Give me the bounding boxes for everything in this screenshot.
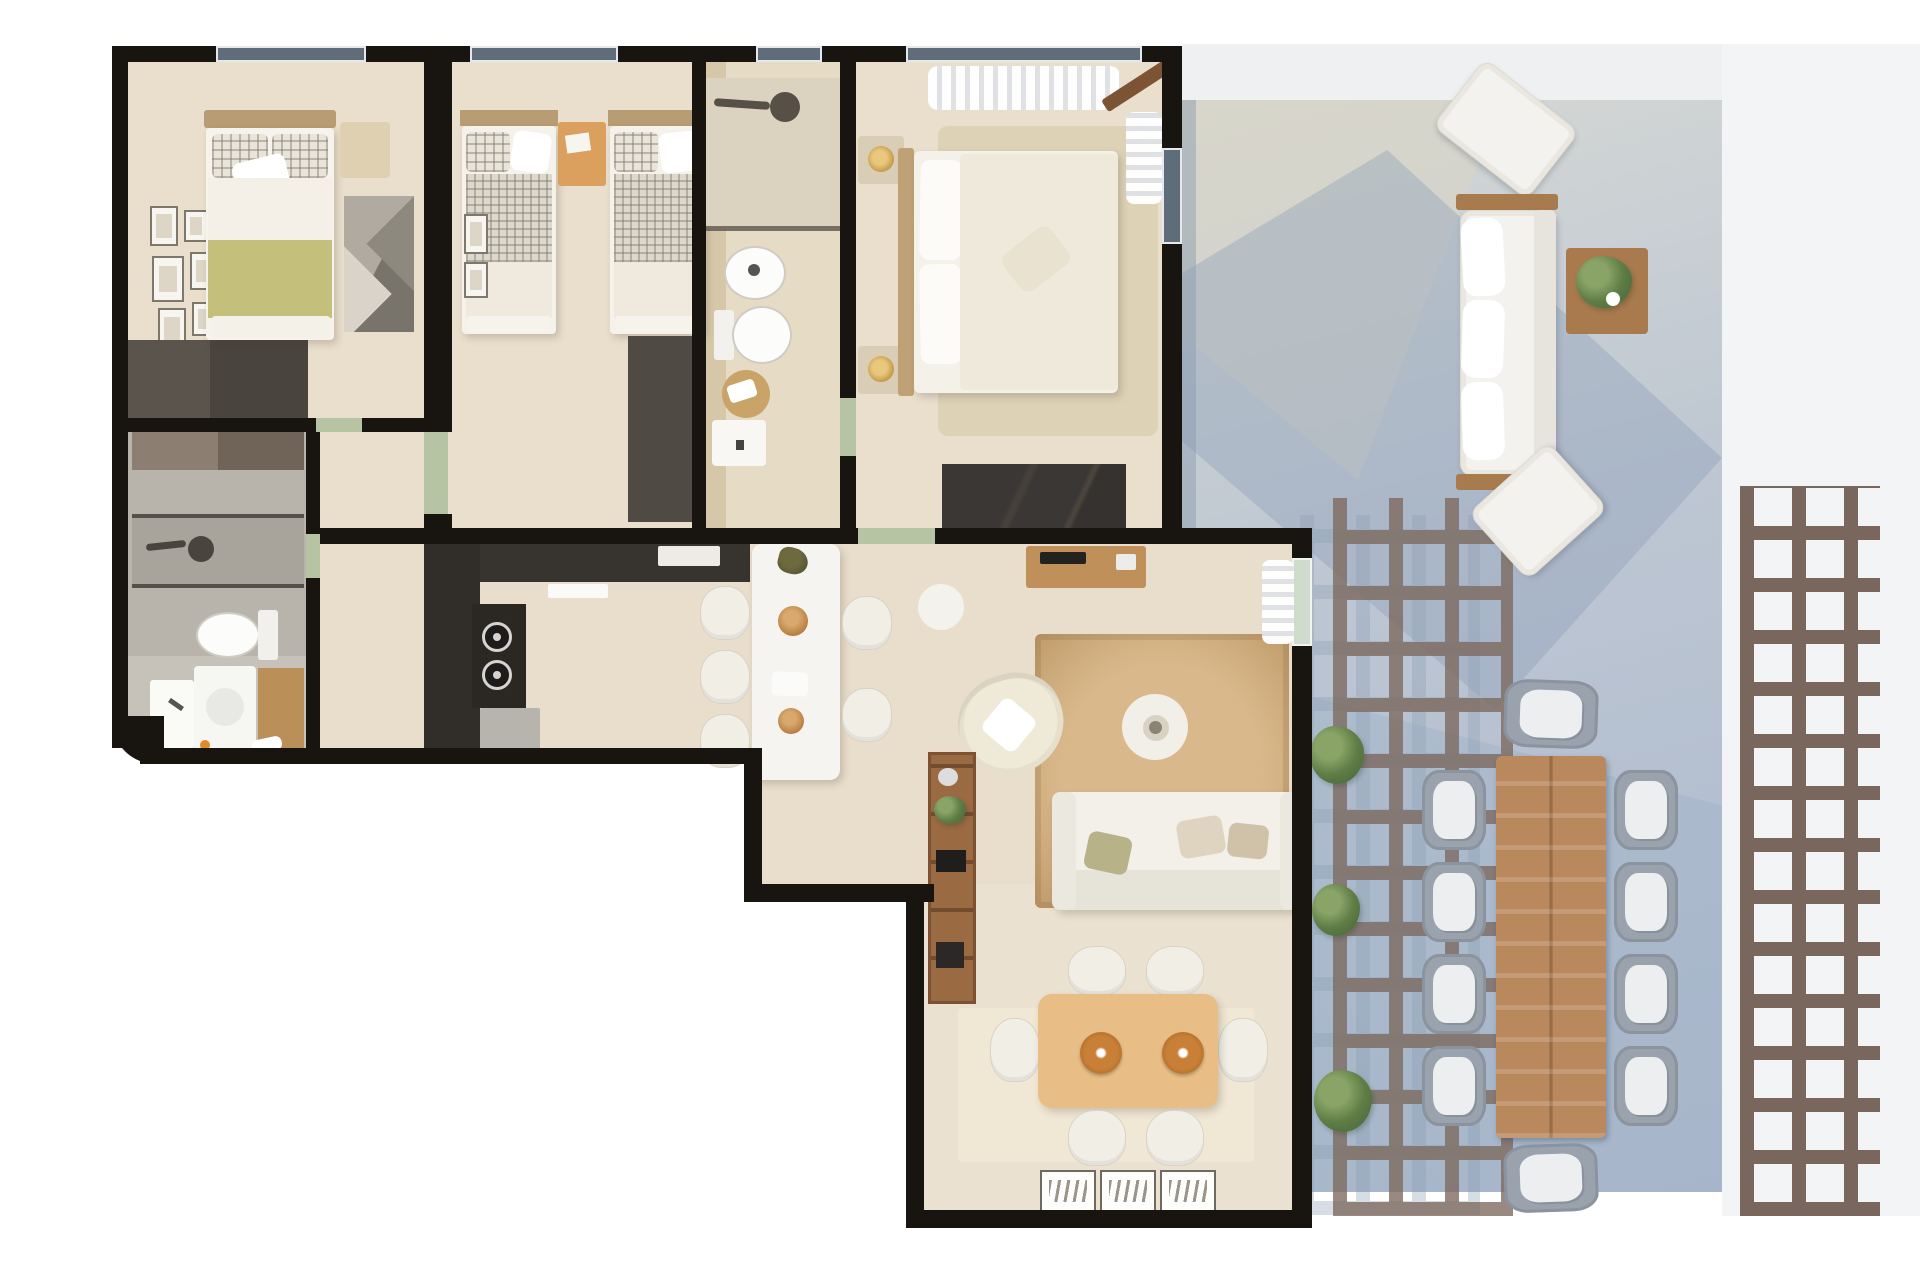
bedroom2-poster [464, 262, 488, 298]
window-bathroom1 [756, 46, 822, 62]
dining-chair [990, 1018, 1040, 1082]
bedroom2-bedB-pillow [614, 132, 658, 172]
wall-bottom-entry [140, 748, 762, 764]
bathroom1-toilet-tank [714, 310, 734, 360]
island-bowl [778, 708, 804, 734]
kitchen-cooktop-section [472, 604, 526, 708]
kitchen-ac-vent [658, 546, 720, 566]
wall-bed2-bath1 [692, 60, 706, 542]
dining-chair [1068, 1110, 1126, 1166]
terrace-sliding-door [1292, 558, 1312, 646]
tv-remote [1040, 552, 1086, 564]
outdoor-chair [1503, 1142, 1599, 1213]
dining-chair [1218, 1018, 1268, 1082]
outdoor-sofa-cushion [1461, 381, 1506, 460]
shelf-box [936, 850, 966, 872]
outdoor-sofa-armrest [1534, 210, 1556, 476]
bedroom2-bedA-pillow [466, 132, 510, 172]
island-chair [842, 596, 892, 650]
bathroom2-shower [132, 514, 304, 588]
wall-dining-bottom [906, 1210, 1312, 1228]
kitchen-island [752, 544, 840, 780]
wall-bed1-bed2-low [424, 514, 452, 528]
bedroom1-dresser [210, 340, 308, 418]
bedroom2-bedA-pillow [509, 130, 552, 175]
bathroom2-toilet-tank [258, 610, 278, 660]
outdoor-chair [1503, 678, 1599, 749]
door-threshold-bathroom2 [306, 534, 320, 578]
bathroom2-toilet-bowl [196, 612, 260, 658]
bathroom1-bidet-tap [748, 264, 760, 276]
outdoor-cup [1606, 292, 1620, 306]
coffee-table-bowl [1149, 721, 1162, 734]
dining-art-print [1160, 1170, 1216, 1212]
island-bowl [778, 606, 808, 636]
window-master [906, 46, 1142, 62]
wall-left [112, 46, 128, 748]
bathroom2-counter [218, 432, 304, 470]
outdoor-chair [1614, 954, 1678, 1034]
bedroom2-wardrobe [628, 336, 692, 522]
shelf-vase [938, 768, 958, 786]
door-threshold-master [858, 528, 935, 544]
outdoor-sofa-cushion [1460, 217, 1506, 297]
outdoor-sofa-cushion [1461, 299, 1506, 378]
dining-chair [1146, 1110, 1204, 1166]
window-bedroom1 [216, 46, 366, 62]
bedroom1-bed-headboard [204, 110, 336, 128]
sofa-backrest [1052, 870, 1304, 910]
terrace-deck-top [1182, 44, 1722, 102]
outdoor-chair [1614, 1046, 1678, 1126]
bedroom2-desk-paper [565, 132, 591, 153]
master-pillow [919, 264, 963, 365]
bathroom1-vanity-tap [736, 440, 744, 450]
master-lamp [868, 146, 894, 172]
outdoor-dining-table [1496, 756, 1606, 1138]
bedroom1-duvet-fold [212, 316, 330, 338]
bedroom2-poster [464, 214, 488, 254]
dining-art-print [1100, 1170, 1156, 1212]
island-chair [700, 586, 750, 640]
living-side-table [918, 584, 964, 630]
bedroom2-bedA-headboard [460, 110, 558, 126]
wall-master-right-bot [1162, 244, 1182, 542]
sofa-pillow [1226, 822, 1269, 860]
island-plate [772, 671, 809, 696]
door-threshold-bedroom1 [424, 432, 448, 514]
island-chair [700, 650, 750, 704]
door-threshold-vestibule [316, 418, 362, 432]
bathroom2-shower-head [188, 536, 214, 562]
washing-machine-door [206, 688, 244, 726]
kitchen-sink [548, 584, 608, 598]
door-threshold-bathroom1 [840, 398, 856, 456]
bedroom1-frame [184, 210, 208, 242]
trellis-right [1740, 486, 1880, 1216]
bedroom2-bedB-fold [616, 316, 698, 332]
kitchen-burner [482, 622, 512, 652]
dining-pendant [1162, 1032, 1204, 1074]
dining-art-print [1040, 1170, 1096, 1212]
bedroom2-desk [558, 122, 606, 186]
dining-pendant [1080, 1032, 1122, 1074]
wall-living-right-bot [1292, 646, 1312, 1228]
wall-vestibule [362, 418, 424, 432]
bedroom1-frame [152, 256, 184, 302]
wall-bed1-bath2 [112, 418, 306, 432]
wall-bath2-right-top [306, 418, 320, 534]
floor-plan-canvas [0, 0, 1920, 1280]
tv-console-item [1116, 554, 1136, 570]
bathroom2-shower-glass [132, 514, 304, 518]
bathroom1-shower-glass [706, 226, 840, 231]
outdoor-chair [1422, 1046, 1486, 1126]
wall-rooms-bottom-right [935, 528, 1312, 544]
bedroom1-olive-blanket [208, 240, 332, 318]
master-curtain [928, 66, 1120, 110]
outdoor-chair [1422, 770, 1486, 850]
master-wardrobe [942, 464, 1126, 528]
bedroom2-bedB-duvet [614, 174, 700, 262]
shelf-box [936, 942, 964, 968]
outdoor-sofa-side-table [1456, 194, 1558, 210]
master-curtain-corner [1126, 112, 1162, 204]
wall-master-right-top [1162, 60, 1182, 148]
outdoor-chair [1614, 770, 1678, 850]
outdoor-chair [1422, 954, 1486, 1034]
bedroom1-rug [344, 196, 414, 332]
dining-chair [1068, 946, 1126, 996]
bathroom2-shower-glass [132, 584, 304, 588]
sofa-armrest [1052, 792, 1076, 910]
terrace-door-curtain [1262, 560, 1294, 644]
bedroom1-duvet [208, 178, 332, 240]
master-pillow [919, 160, 963, 261]
bedroom1-frame [150, 206, 178, 246]
wall-living-right-top [1292, 528, 1312, 560]
island-chair [842, 688, 892, 742]
outdoor-chair [1614, 862, 1678, 942]
kitchen-burner [482, 660, 512, 690]
wall-bath1-master-top [840, 60, 856, 398]
window-master-side [1162, 148, 1182, 244]
bedroom2-bedA-fold [468, 316, 550, 332]
wall-dining-left [906, 884, 924, 1228]
dining-chair [1146, 946, 1204, 996]
bathroom1-toilet-bowl [732, 306, 792, 364]
bedroom1-nightstand [340, 122, 390, 178]
bathroom1-shower-head [770, 92, 800, 122]
master-lamp [868, 356, 894, 382]
sofa-pillow [1175, 814, 1227, 859]
window-bedroom2 [470, 46, 618, 62]
bedroom1-dresser [118, 340, 210, 418]
wall-step-vertical [744, 748, 762, 902]
master-bed-headboard [898, 148, 914, 396]
wall-rooms-bottom-left [306, 528, 858, 544]
bedroom2-bedB-blanket [614, 262, 700, 318]
bathroom2-counter [132, 432, 218, 470]
wall-bed1-bed2 [424, 60, 452, 432]
wall-bath2-right-bot [306, 578, 320, 748]
outdoor-chair [1422, 862, 1486, 942]
